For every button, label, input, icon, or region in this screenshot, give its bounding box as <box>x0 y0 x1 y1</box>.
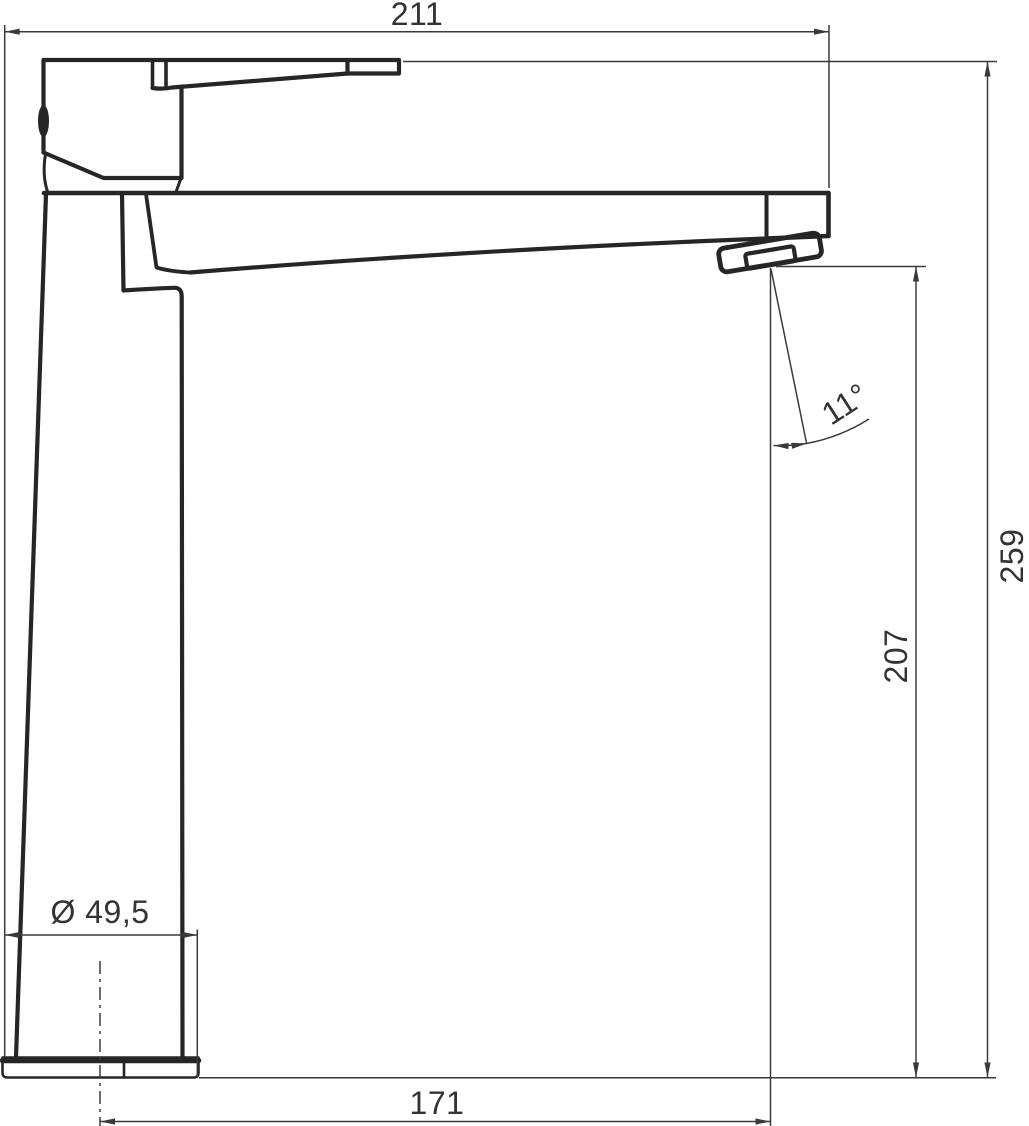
spout-neck-front <box>146 194 190 273</box>
spout-end-cap <box>767 193 829 239</box>
dimension-overall-height: 259 <box>403 62 1029 1078</box>
faucet-handle-lever <box>44 60 400 89</box>
faucet-technical-drawing: 211 259 207 11° Ø 49,5 <box>0 0 1029 1126</box>
overall-length-label: 211 <box>391 0 444 32</box>
column-left-edge <box>16 194 46 1057</box>
dimension-outlet-reach: 171 <box>100 961 771 1126</box>
drawing-canvas: 211 259 207 11° Ø 49,5 <box>0 0 1029 1126</box>
handle-side-button <box>38 105 49 137</box>
faucet-handle-body <box>38 60 182 192</box>
outlet-reach-label: 171 <box>410 1085 465 1121</box>
base-diameter-label: Ø 49,5 <box>50 894 149 930</box>
overall-height-label: 259 <box>994 529 1029 584</box>
dimension-outlet-angle: 11° <box>771 268 875 1126</box>
handle-foot-front <box>176 178 181 192</box>
faucet-spout <box>44 193 829 273</box>
dimension-base-diameter: Ø 49,5 <box>5 894 198 1077</box>
handle-body-bottom <box>44 153 182 179</box>
handle-foot-rear <box>44 154 47 192</box>
reference-line-angled <box>771 269 807 443</box>
outlet-angle-label: 11° <box>815 376 874 432</box>
spout-underside <box>190 239 767 273</box>
angle-arc <box>774 444 807 446</box>
outlet-height-label: 207 <box>878 629 914 684</box>
